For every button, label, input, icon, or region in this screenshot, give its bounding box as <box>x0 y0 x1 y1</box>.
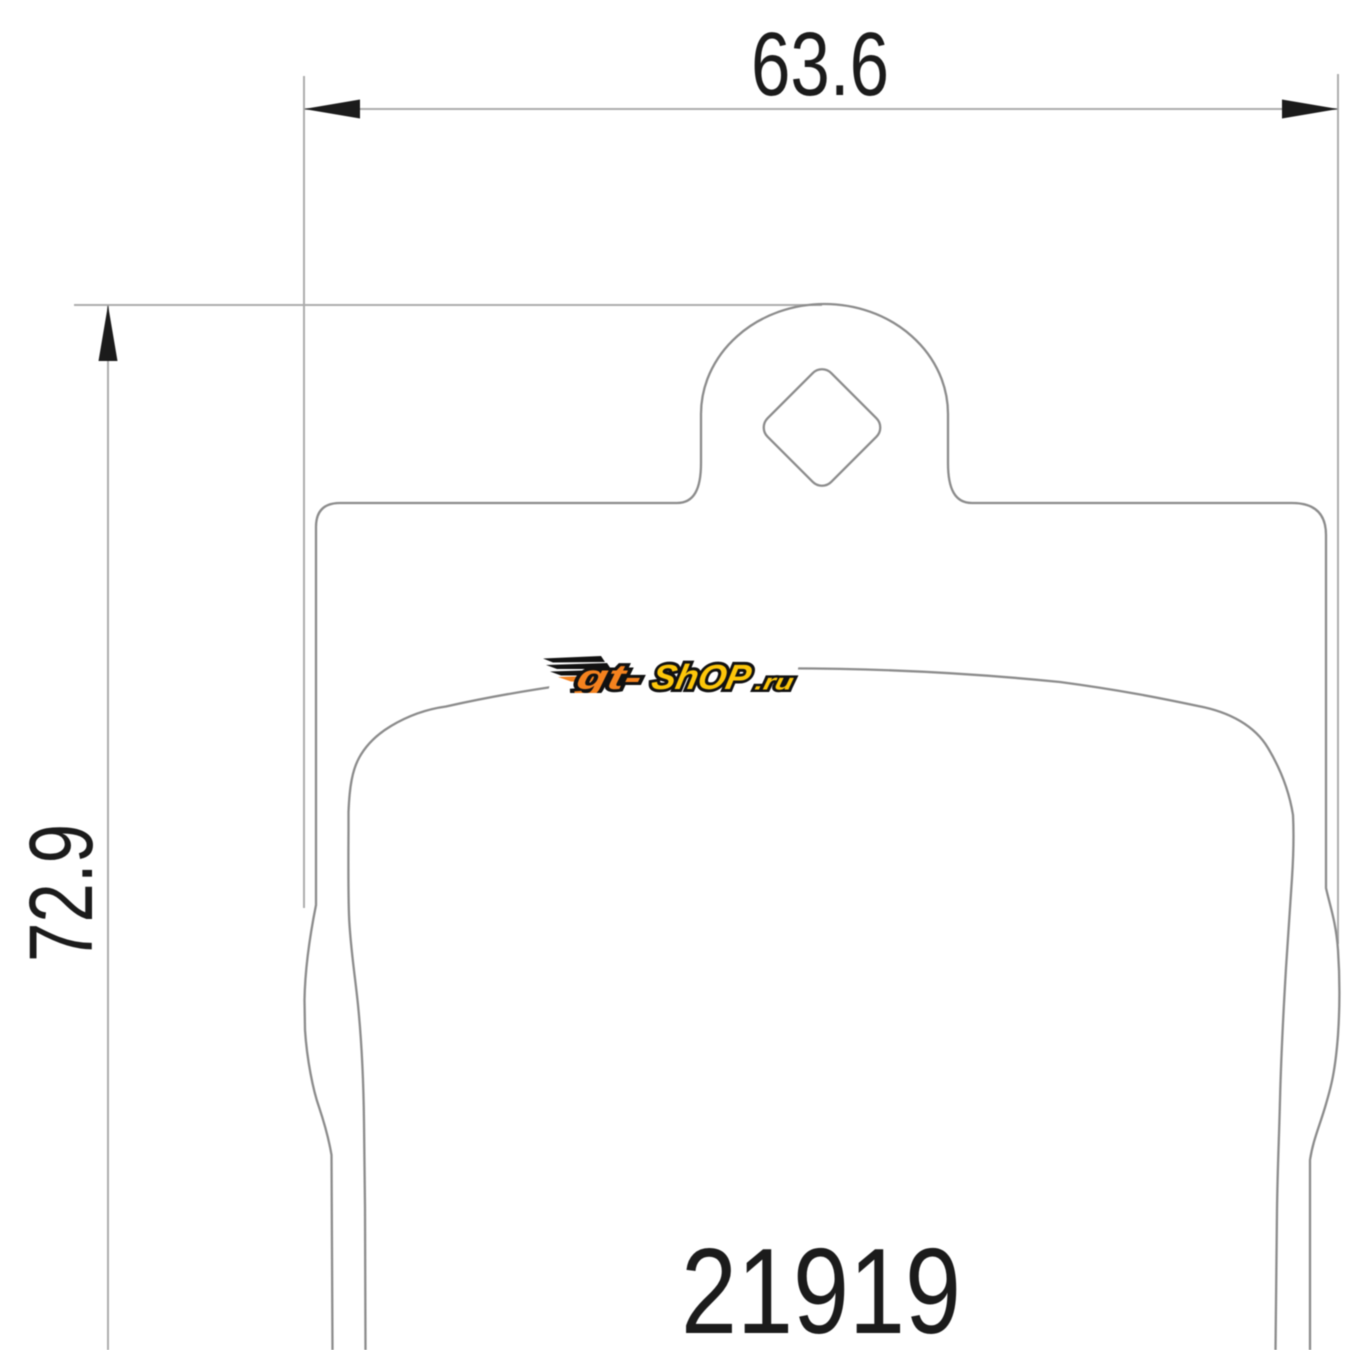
svg-text:gt-: gt- <box>572 658 646 697</box>
svg-text:.ru: .ru <box>753 670 797 695</box>
svg-text:72.9: 72.9 <box>12 824 112 962</box>
svg-text:ShOP: ShOP <box>648 658 755 697</box>
svg-text:63.6: 63.6 <box>751 15 889 115</box>
svg-text:21919: 21919 <box>681 1223 961 1350</box>
